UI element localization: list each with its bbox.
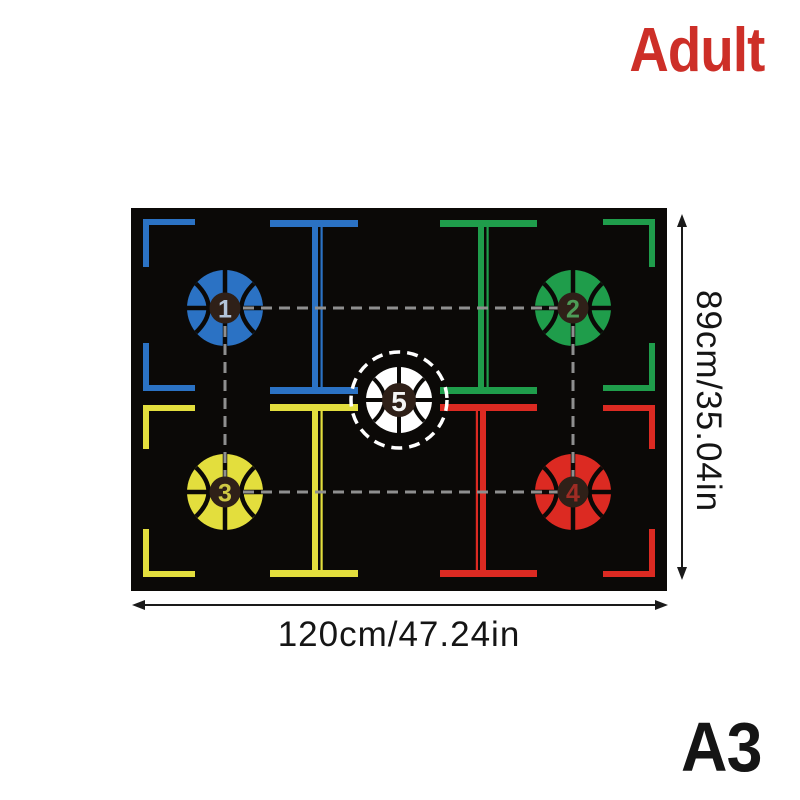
width-dimension-label: 120cm/47.24in xyxy=(131,615,667,655)
zone-green-corner-top-right xyxy=(603,219,655,267)
audience-label: Adult xyxy=(629,20,764,82)
height-dimension-arrow xyxy=(681,217,683,577)
paper-size-label: A3 xyxy=(681,712,761,782)
zone-blue-corner-mid-left xyxy=(143,343,195,391)
ball-number-1: 1 xyxy=(210,293,241,324)
width-dimension-arrow xyxy=(135,604,665,606)
ball-number-3: 3 xyxy=(210,477,241,508)
zone-red-corner-mid-right xyxy=(603,405,655,449)
ball-number-text: 4 xyxy=(566,480,580,508)
ball-number-text: 2 xyxy=(566,296,580,324)
product-image: Adult xyxy=(0,0,800,800)
ball-number-text: 1 xyxy=(218,296,232,324)
zone-yellow-corner-mid-left xyxy=(143,405,195,449)
zone-blue-corner-top-left xyxy=(143,219,195,267)
ball-number-4: 4 xyxy=(558,477,589,508)
ball-number-5: 5 xyxy=(382,383,416,417)
training-mat: 12345 xyxy=(131,208,667,591)
ball-number-text: 3 xyxy=(218,480,232,508)
zone-green-corner-mid-right xyxy=(603,343,655,391)
height-dimension-label: 89cm/35.04in xyxy=(688,208,728,594)
mat-markings: 12345 xyxy=(131,208,667,591)
zone-red-corner-bottom-right xyxy=(603,529,655,577)
ball-number-2: 2 xyxy=(558,293,589,324)
zone-yellow-corner-bottom-left xyxy=(143,529,195,577)
ball-number-text: 5 xyxy=(391,386,407,417)
ball-numbers-layer: 12345 xyxy=(210,293,589,508)
